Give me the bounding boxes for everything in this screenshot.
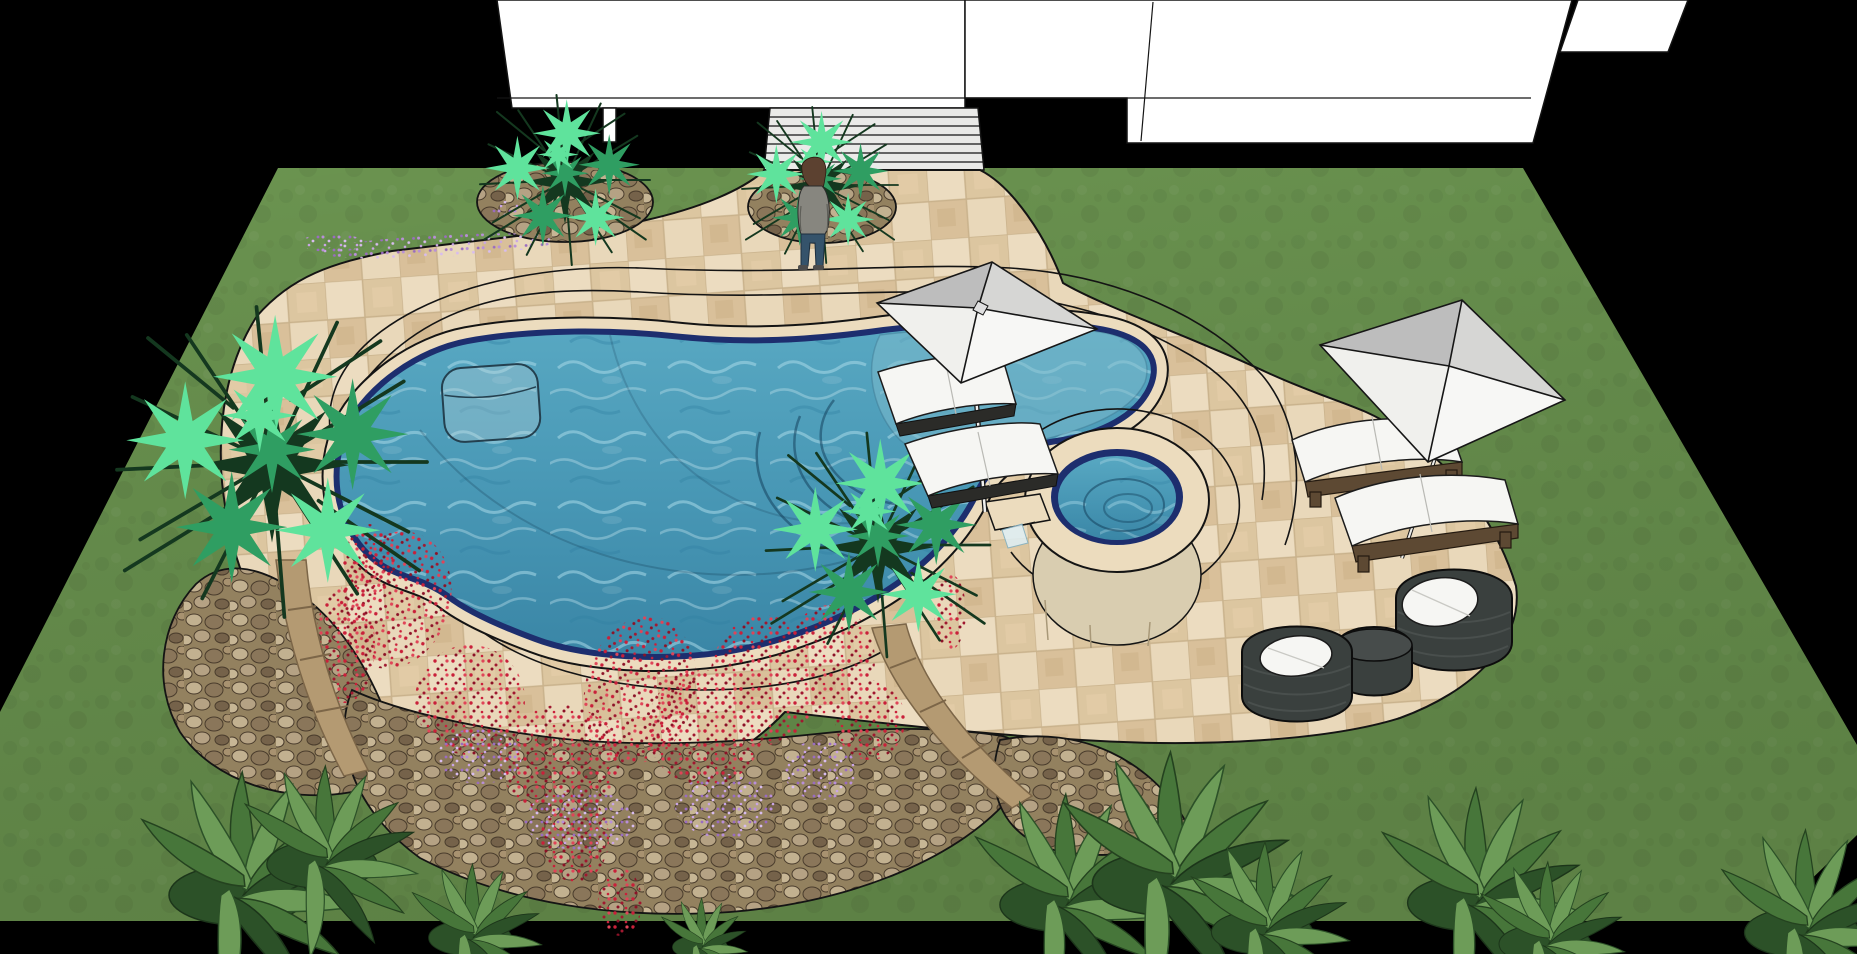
pool-design-render (0, 0, 1857, 954)
wicker-chair-left (1242, 627, 1352, 722)
person-shirt (798, 186, 829, 234)
person-shoe-left (798, 265, 808, 270)
render-canvas (0, 0, 1857, 954)
wicker-chair-right (1396, 570, 1512, 671)
house-wall-far-right (1560, 0, 1688, 52)
house-wall-left (497, 0, 965, 108)
person-shoe-right (813, 265, 824, 270)
pool-bench-table (441, 363, 542, 444)
